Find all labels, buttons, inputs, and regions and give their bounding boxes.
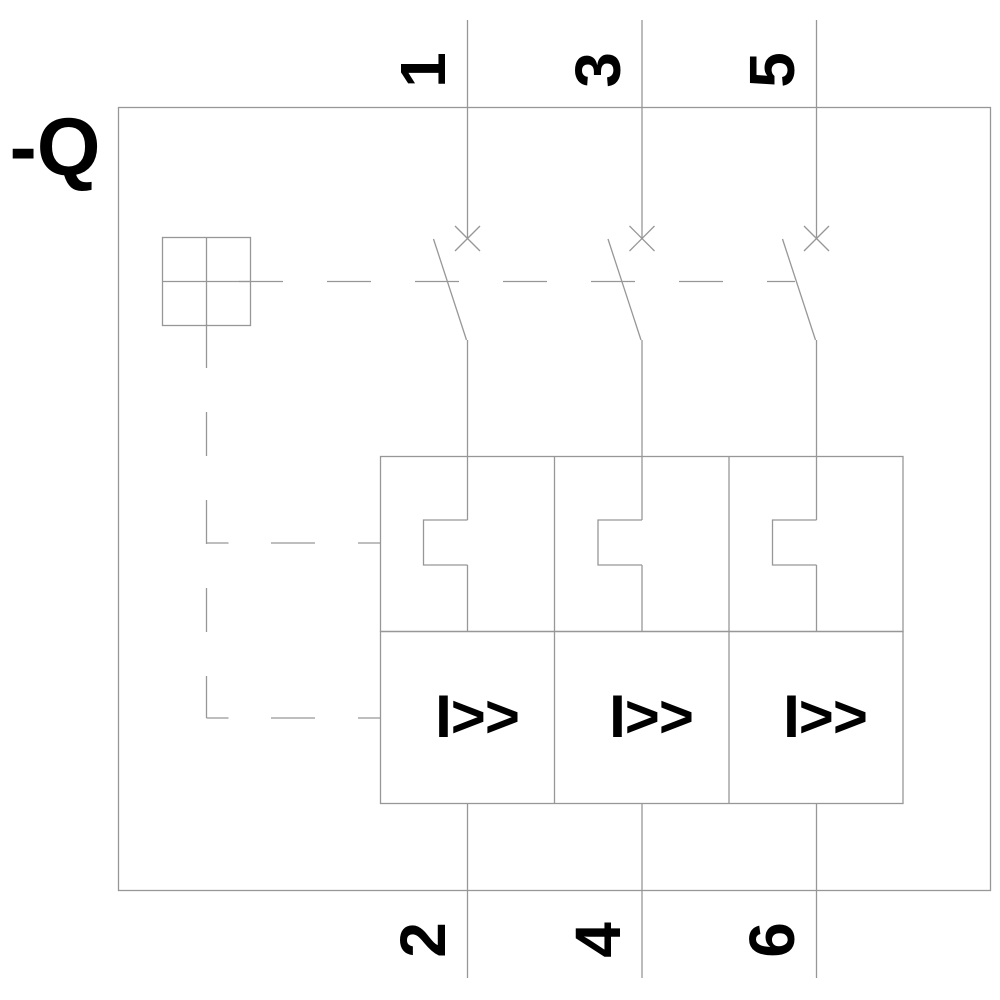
trip-linkage-dashed-lines <box>207 282 796 719</box>
schematic-canvas: -Q 1 3 5 2 4 6 I>> I>> I>> <box>0 0 1000 1000</box>
component-designator: -Q <box>0 103 165 193</box>
terminal-label-4: 4 <box>553 895 643 985</box>
terminal-label-6: 6 <box>727 895 817 985</box>
terminal-label-1: 1 <box>378 25 468 115</box>
pole-2-magnetic-trip-label: I>> <box>551 677 751 757</box>
terminal-label-3: 3 <box>553 25 643 115</box>
pole-3-magnetic-trip-label: I>> <box>725 677 925 757</box>
pole-1-magnetic-trip-label: I>> <box>377 677 577 757</box>
pole-1-switch-blade <box>434 239 467 340</box>
pole-2-path <box>598 20 655 978</box>
pole-1-thermal-element-icon <box>424 520 468 565</box>
pole-3-switch-blade <box>783 239 816 340</box>
operating-mechanism-symbol <box>163 238 251 326</box>
pole-2-switch-blade <box>608 239 641 340</box>
pole-3-thermal-element-icon <box>773 520 817 565</box>
terminal-label-5: 5 <box>727 25 817 115</box>
pole-3-path <box>773 20 830 978</box>
pole-2-thermal-element-icon <box>598 520 642 565</box>
pole-1-path <box>424 20 481 978</box>
terminal-label-2: 2 <box>378 895 468 985</box>
